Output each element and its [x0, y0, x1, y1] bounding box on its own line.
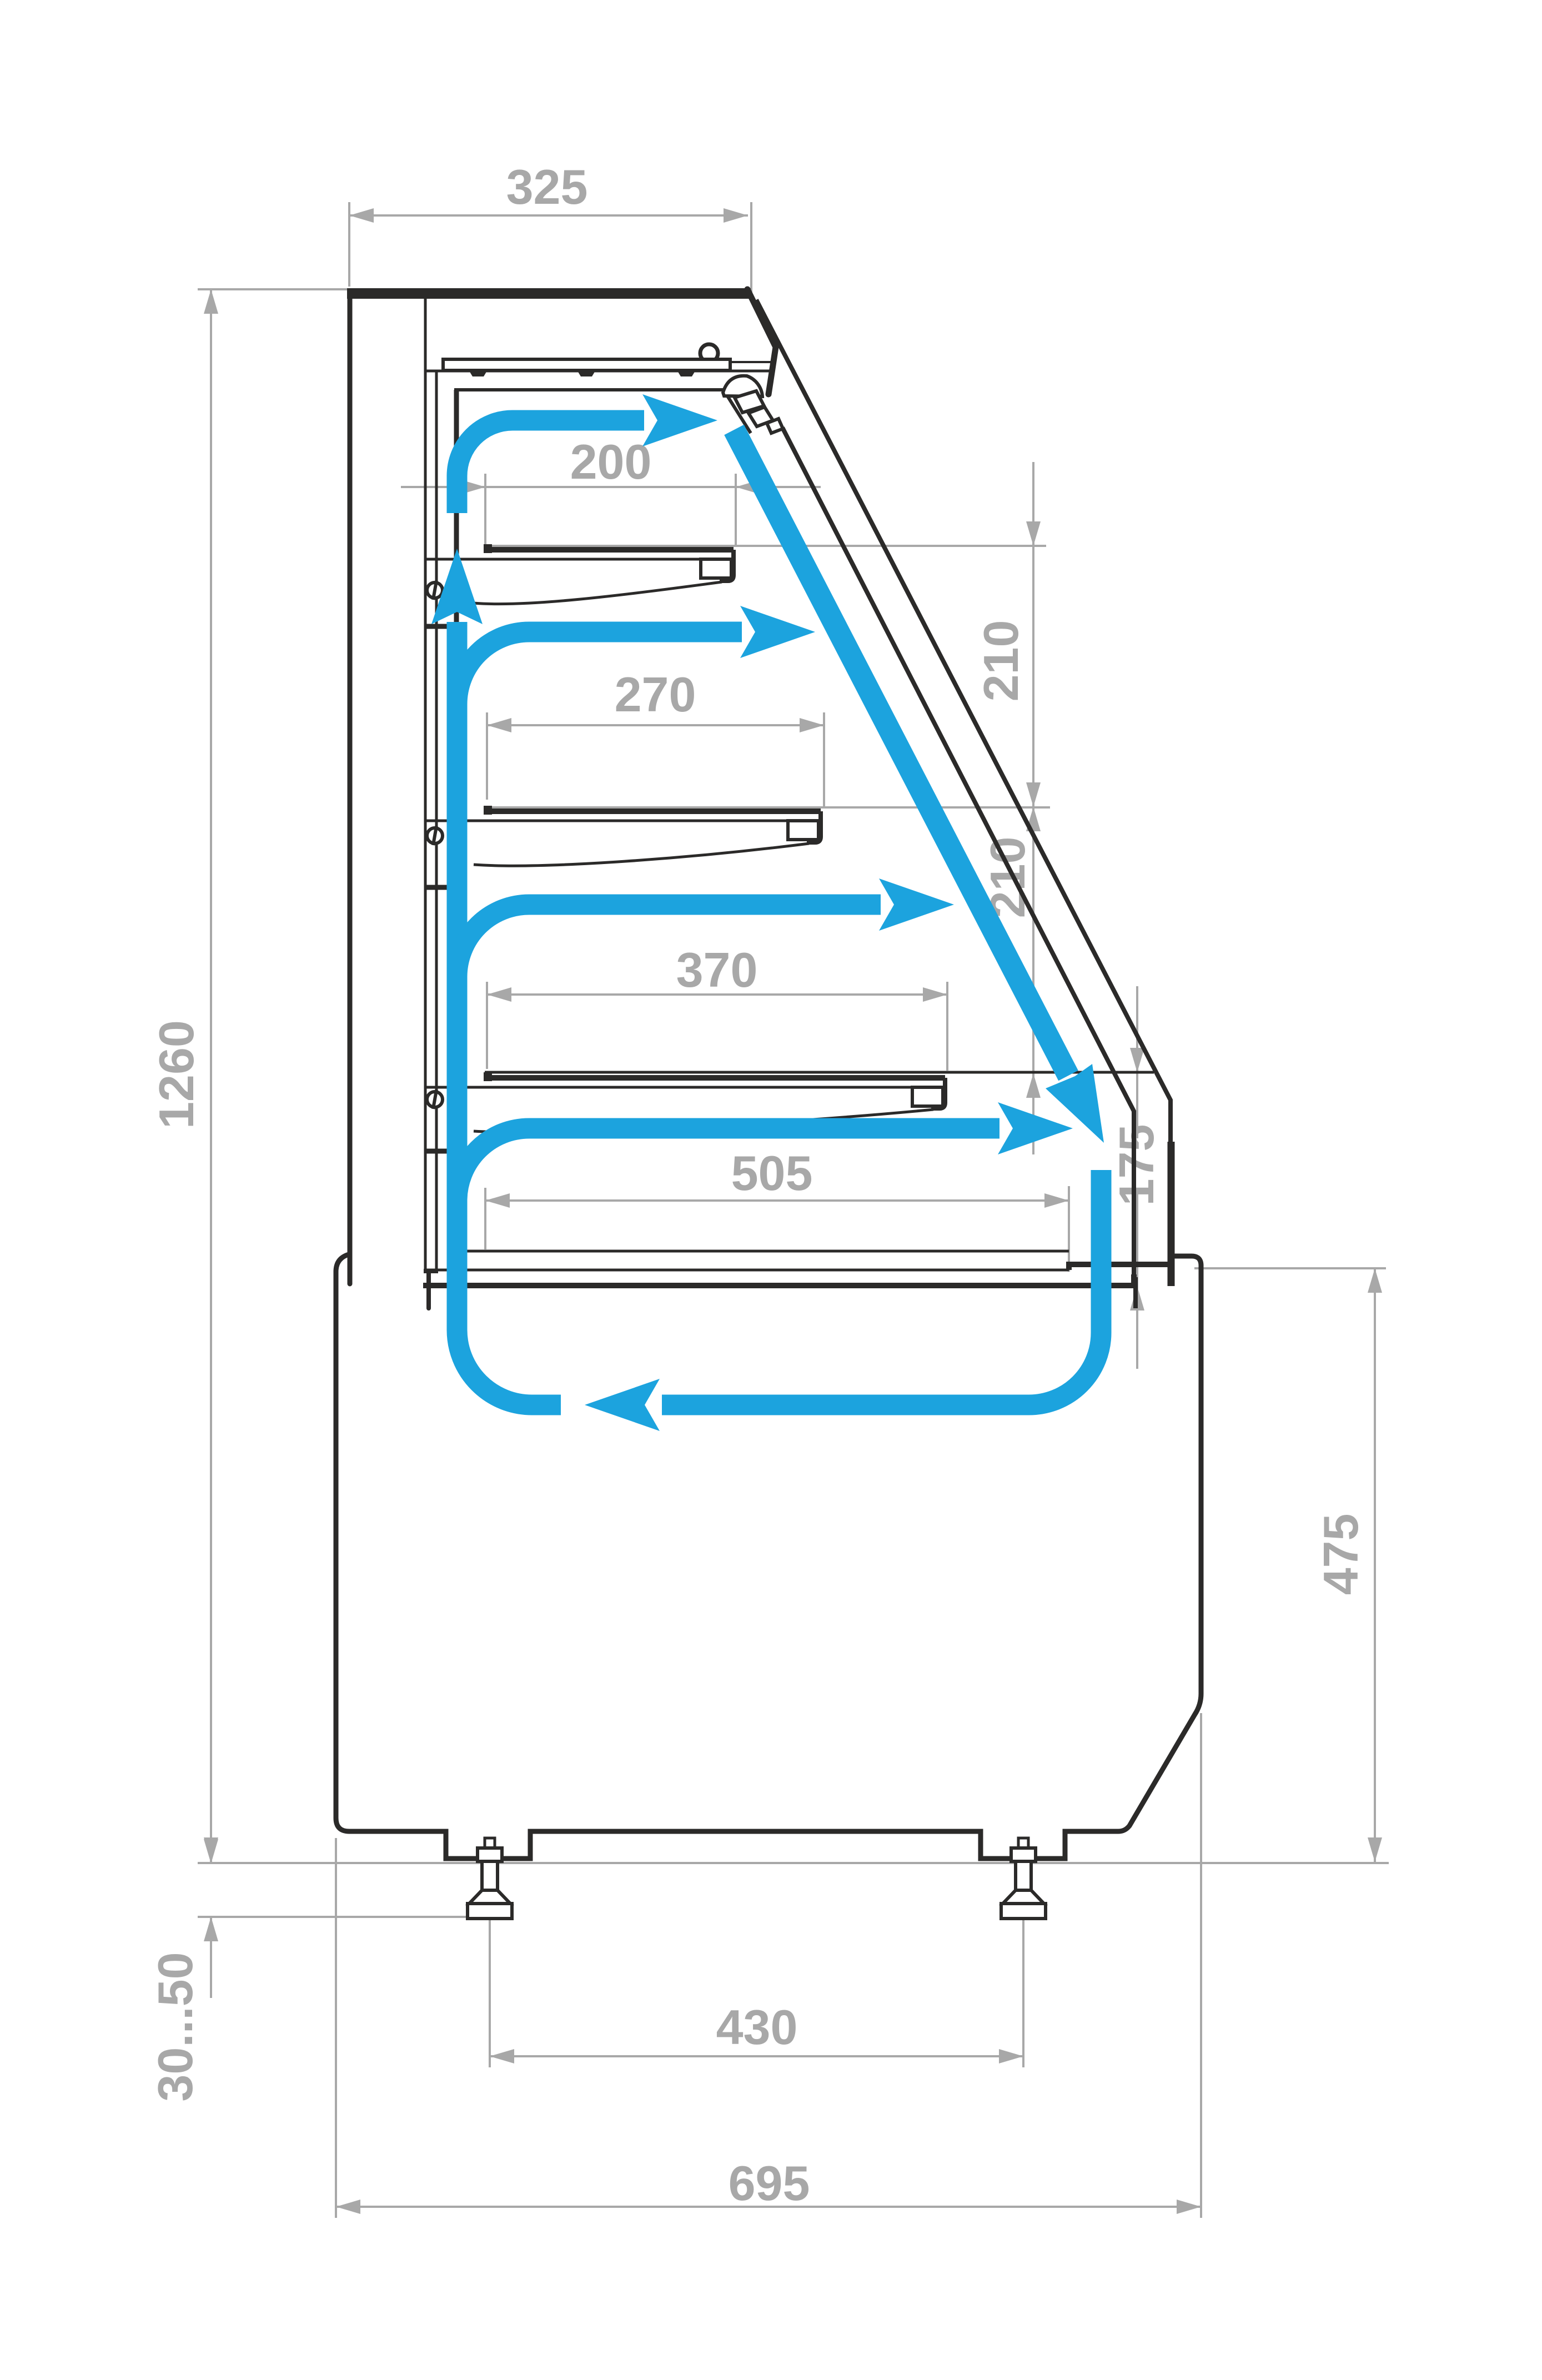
svg-text:475: 475: [1313, 1514, 1368, 1595]
svg-text:430: 430: [716, 2000, 798, 2055]
svg-text:175: 175: [1109, 1124, 1164, 1206]
svg-text:695: 695: [729, 2156, 810, 2211]
svg-text:200: 200: [570, 434, 652, 489]
svg-text:1260: 1260: [149, 1020, 204, 1129]
svg-text:210: 210: [973, 620, 1028, 702]
svg-text:30...50: 30...50: [148, 1952, 203, 2101]
svg-text:270: 270: [615, 667, 696, 722]
svg-text:370: 370: [676, 942, 758, 997]
svg-text:505: 505: [731, 1146, 813, 1201]
svg-text:325: 325: [506, 159, 588, 214]
